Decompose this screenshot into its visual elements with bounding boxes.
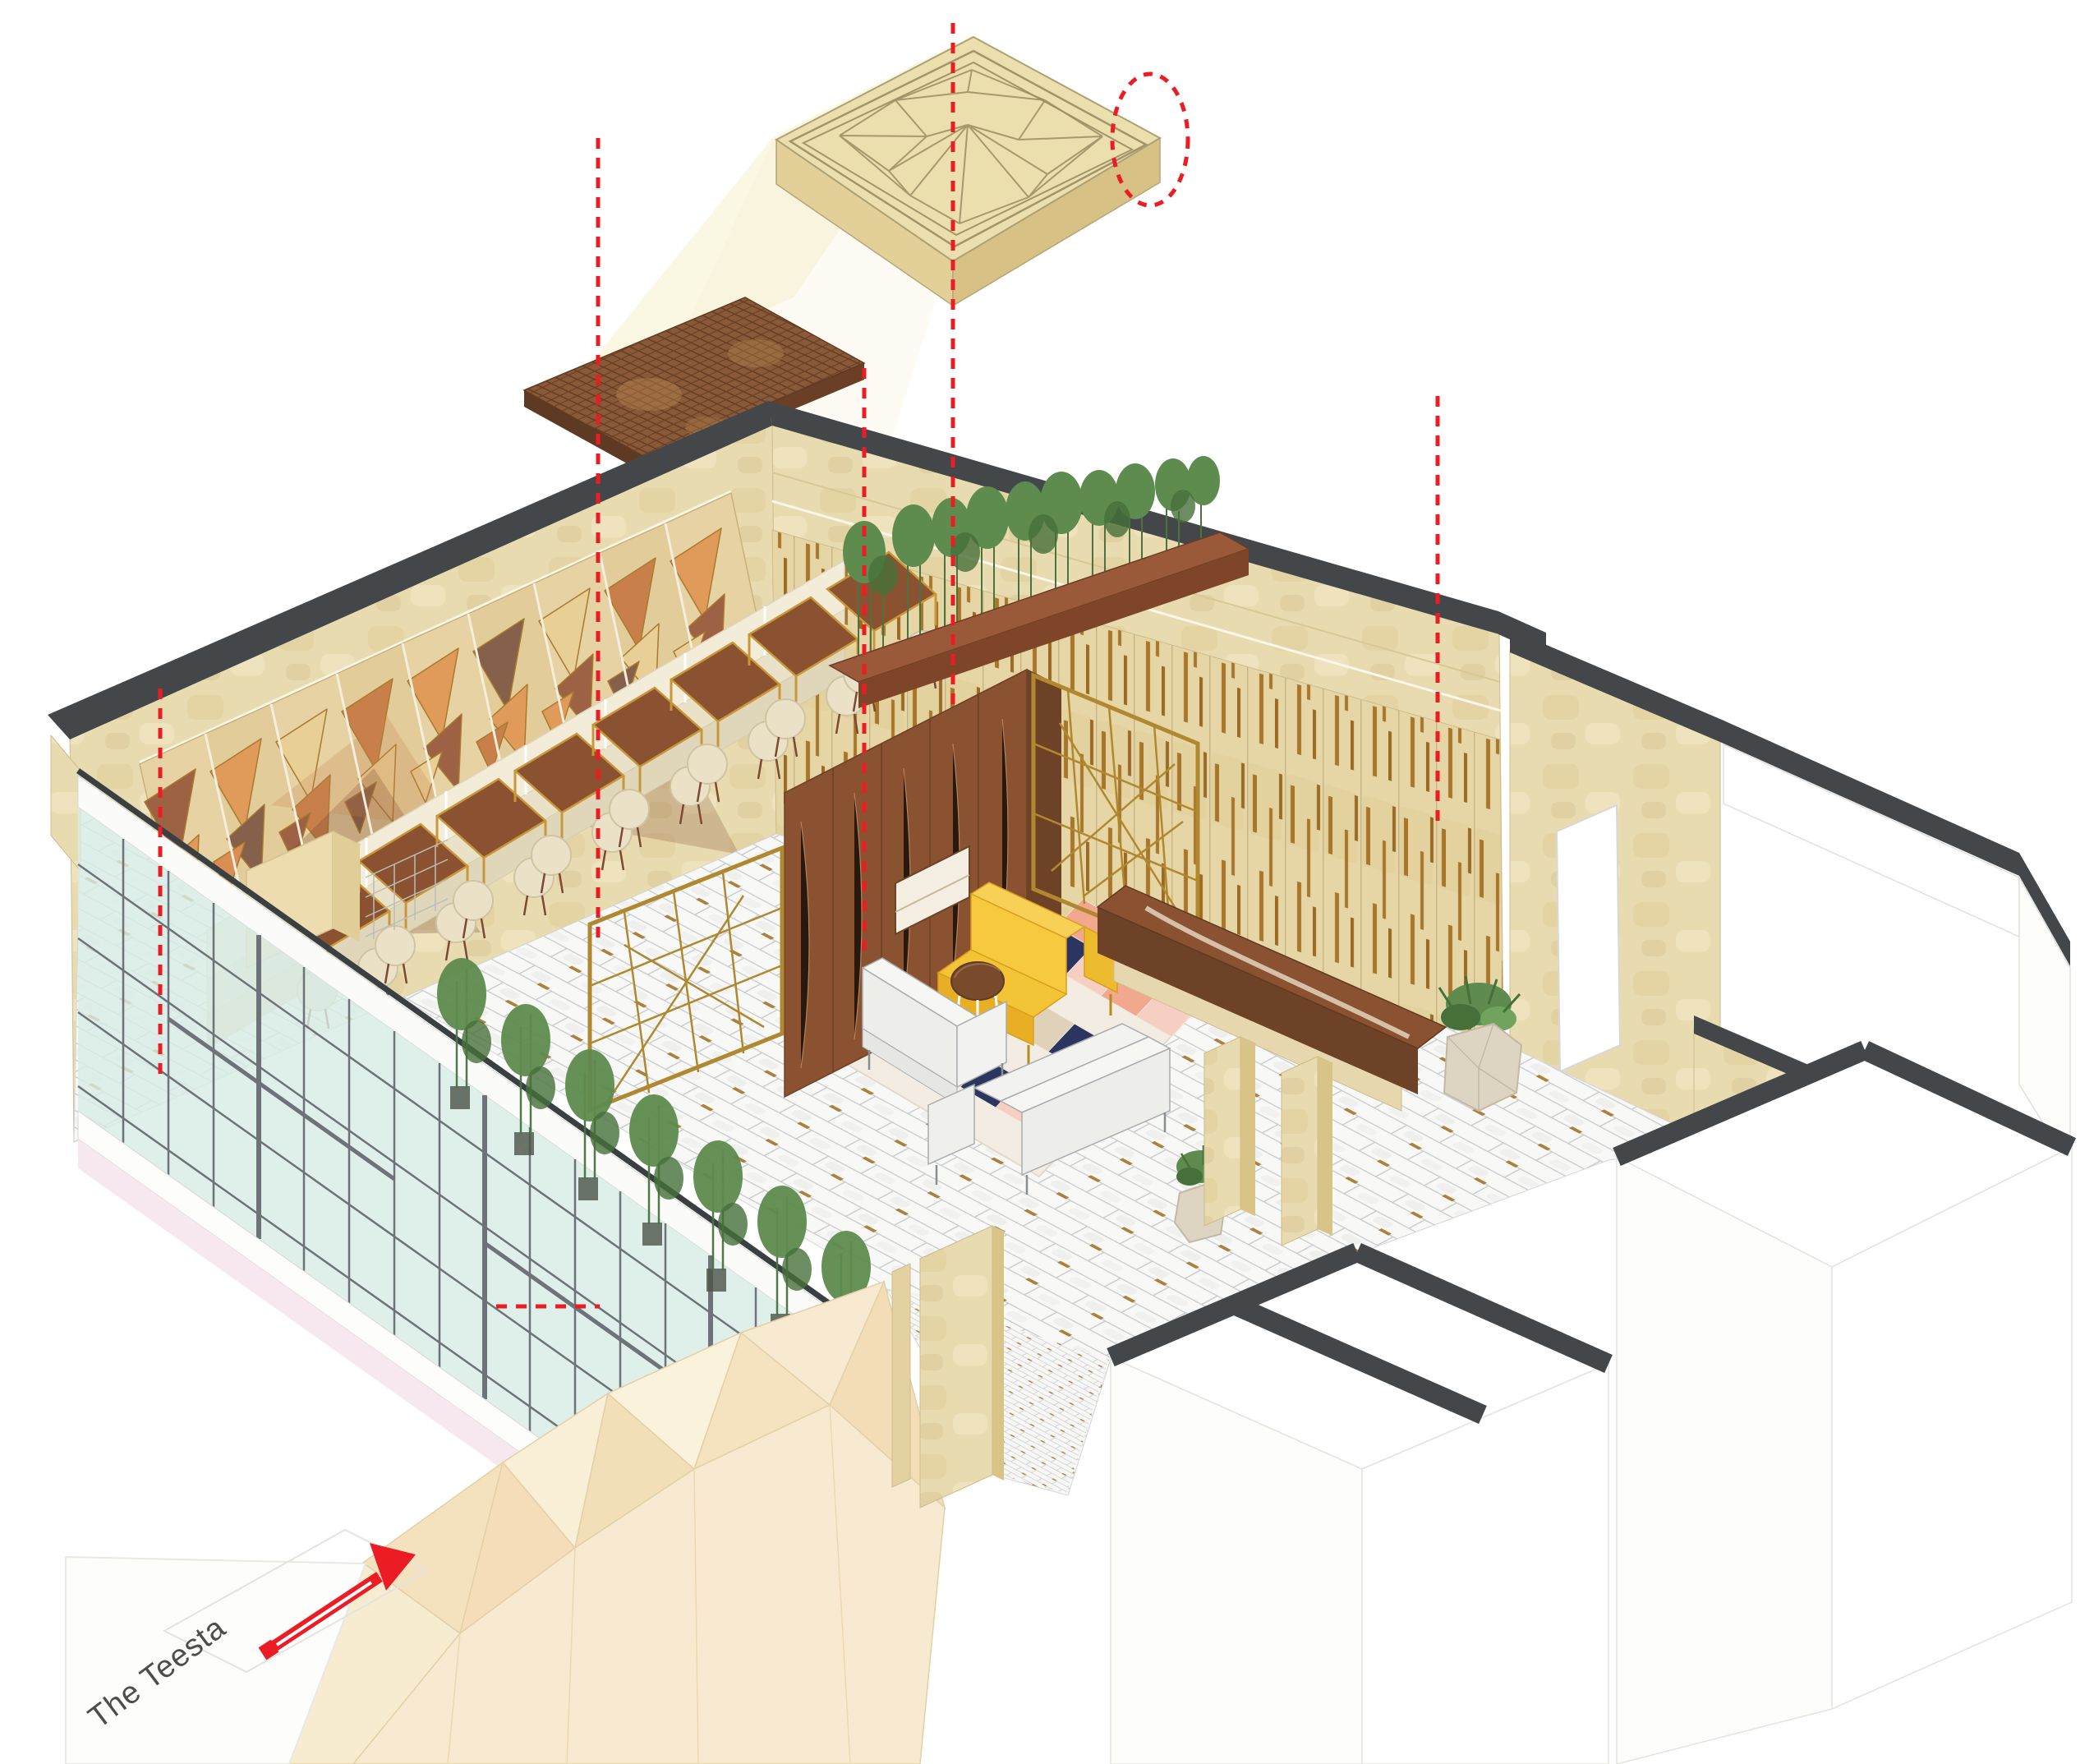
exploded-axonometric-diagram: The Teesta <box>0 0 2094 1764</box>
door-opening <box>1557 805 1620 1071</box>
white-box-center <box>1111 1252 1608 1764</box>
stone-planter-plant <box>1439 976 1521 1111</box>
entry-pillar <box>892 1226 1004 1508</box>
